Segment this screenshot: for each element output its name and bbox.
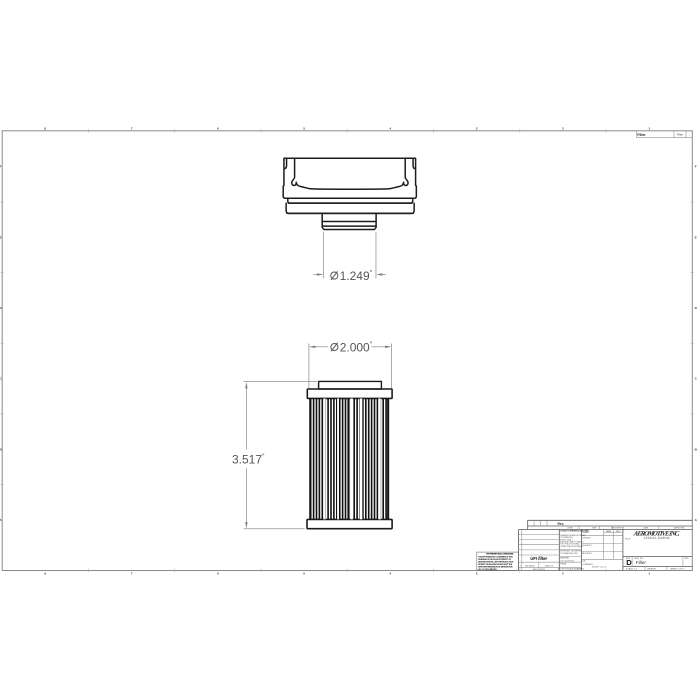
svg-text:1: 1 bbox=[648, 126, 650, 130]
svg-text:8: 8 bbox=[44, 572, 46, 576]
svg-text:2: 2 bbox=[562, 572, 564, 576]
svg-text:2.000″: 2.000″ bbox=[340, 340, 373, 354]
svg-text:1: 1 bbox=[648, 572, 650, 576]
svg-text:5052 ALUMINUM: 5052 ALUMINUM bbox=[560, 559, 574, 562]
svg-text:DATE: DATE bbox=[616, 530, 621, 533]
svg-text:PROPRIETARY AND CONFIDENTIAL: PROPRIETARY AND CONFIDENTIAL bbox=[486, 553, 514, 556]
svg-text:D: D bbox=[626, 558, 632, 567]
svg-text:WEIGHT: 150.2 g: WEIGHT: 150.2 g bbox=[592, 566, 606, 568]
svg-text:SCALE: 1:1: SCALE: 1:1 bbox=[626, 567, 638, 570]
svg-text:Q.A.: Q.A. bbox=[582, 560, 586, 563]
svg-text:2: 2 bbox=[520, 565, 521, 567]
svg-text:SHEET 1 OF 1: SHEET 1 OF 1 bbox=[670, 568, 685, 570]
svg-text:IN PART OR AS A WHOLE WITHOUT: IN PART OR AS A WHOLE WITHOUT THE bbox=[478, 563, 513, 566]
svg-text:TITLE:: TITLE: bbox=[625, 538, 631, 540]
svg-text:4: 4 bbox=[390, 126, 392, 130]
svg-text:FINISH: FINISH bbox=[560, 564, 567, 566]
svg-text:6: 6 bbox=[217, 572, 219, 576]
svg-text:NEXT ASSY: NEXT ASSY bbox=[525, 564, 536, 567]
svg-text:4: 4 bbox=[390, 572, 392, 576]
svg-text:APPLICATION: APPLICATION bbox=[533, 568, 545, 571]
svg-text:1.249″: 1.249″ bbox=[340, 269, 373, 283]
svg-text:THREE PLACE DECIMAL ±: THREE PLACE DECIMAL ± bbox=[560, 545, 582, 548]
svg-text:ENG APPR.: ENG APPR. bbox=[582, 544, 592, 547]
svg-text:WEIGHT:: WEIGHT: bbox=[647, 568, 657, 570]
svg-text:E: E bbox=[0, 235, 2, 239]
svg-text:DRAWING IS THE SOLE PROPERTY O: DRAWING IS THE SOLE PROPERTY OF bbox=[478, 558, 512, 561]
svg-text:REV.: REV. bbox=[592, 528, 597, 530]
svg-text:TOLERANCING PER:: TOLERANCING PER: bbox=[560, 552, 578, 555]
svg-text:Filter: Filter bbox=[636, 560, 647, 565]
svg-text:3.517″: 3.517″ bbox=[232, 452, 265, 466]
svg-text:Rev.: Rev. bbox=[558, 522, 565, 526]
svg-text:WRITTEN PERMISSION OF AEROMOTI: WRITTEN PERMISSION OF AEROMOTIVE bbox=[478, 566, 513, 569]
svg-text:INC. IS PROHIBITED.: INC. IS PROHIBITED. bbox=[478, 569, 497, 571]
svg-text:7: 7 bbox=[131, 572, 133, 576]
svg-text:F: F bbox=[0, 165, 2, 169]
svg-text:E: E bbox=[695, 235, 697, 239]
svg-text:DO NOT SCALE DRAWING: DO NOT SCALE DRAWING bbox=[558, 568, 584, 571]
svg-text:DRAWN: DRAWN bbox=[582, 531, 589, 534]
svg-text:6: 6 bbox=[217, 126, 219, 130]
svg-text:7: 7 bbox=[131, 126, 133, 130]
svg-text:CHECKED: CHECKED bbox=[582, 537, 591, 539]
svg-text:NAME: NAME bbox=[606, 530, 612, 533]
svg-text:5: 5 bbox=[303, 126, 305, 130]
svg-text:2: 2 bbox=[562, 126, 564, 130]
svg-text:THE INFORMATION CONTAINED IN T: THE INFORMATION CONTAINED IN THIS bbox=[478, 555, 513, 558]
svg-text:MATERIAL: MATERIAL bbox=[560, 557, 569, 560]
svg-text:AEROMOTIVE INC. ANY REPRODUCT: AEROMOTIVE INC. ANY REPRODUCTION bbox=[478, 560, 514, 563]
svg-text:ZONE: ZONE bbox=[567, 528, 573, 530]
svg-text:DATE: DATE bbox=[644, 527, 650, 530]
svg-text:USED ON: USED ON bbox=[545, 565, 554, 567]
svg-text:UFI filter: UFI filter bbox=[530, 556, 547, 561]
svg-text:REV: REV bbox=[685, 558, 690, 560]
svg-text:MFG APPR.: MFG APPR. bbox=[582, 552, 592, 555]
svg-text:APPROVED: APPROVED bbox=[674, 527, 685, 530]
svg-text:3: 3 bbox=[476, 572, 478, 576]
svg-text:5: 5 bbox=[303, 572, 305, 576]
svg-text:F: F bbox=[695, 165, 697, 169]
svg-text:3: 3 bbox=[476, 126, 478, 130]
svg-text:DESCRIPTION: DESCRIPTION bbox=[611, 528, 625, 530]
svg-text:8: 8 bbox=[44, 126, 46, 130]
svg-text:Filter: Filter bbox=[677, 133, 683, 137]
svg-text:Filter: Filter bbox=[637, 133, 646, 137]
